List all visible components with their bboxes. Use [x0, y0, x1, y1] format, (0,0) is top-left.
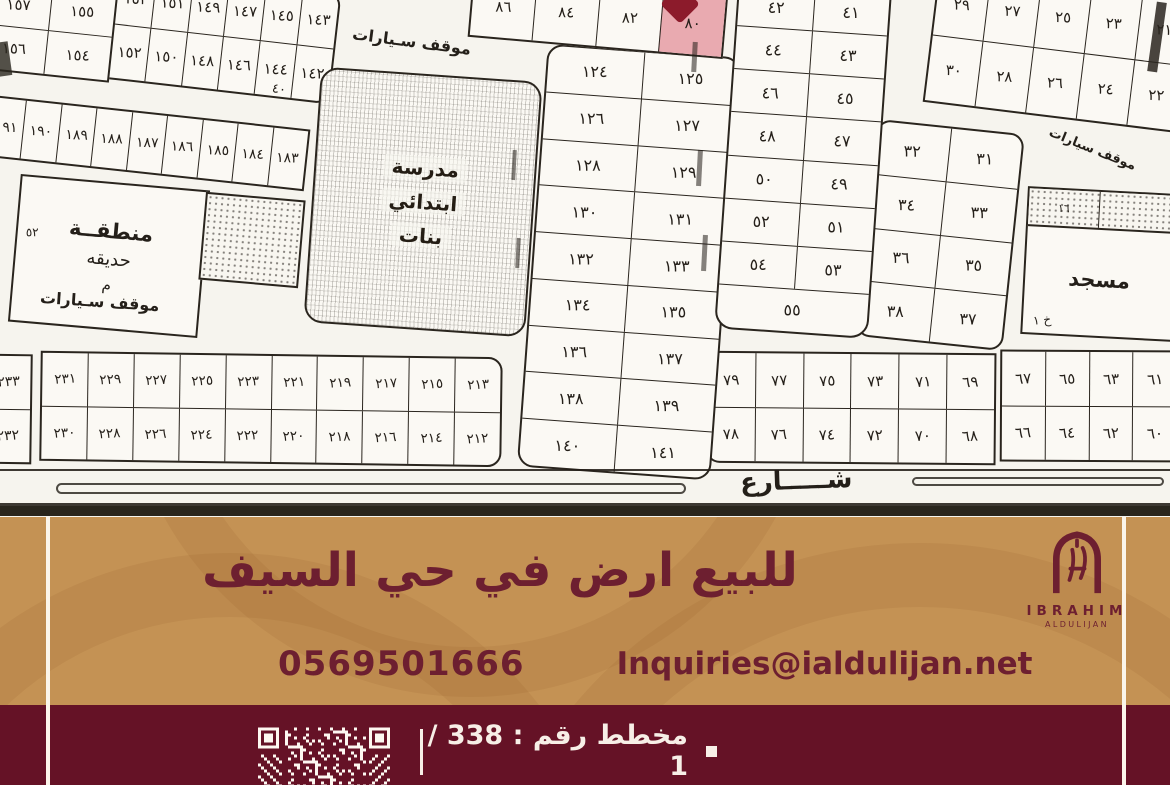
plot-number: ٧٠ — [914, 426, 931, 445]
plot-number: ٨٤ — [558, 3, 574, 21]
plot-number: ٢٢٤ — [190, 426, 213, 443]
plot-number: ٤٣ — [840, 46, 857, 65]
plot-cell: ١٣٥ — [623, 286, 722, 339]
ad-banner: للبيع ارض في حي السيف 0569501666 Inquiri… — [0, 517, 1170, 785]
plot-number: ١٣٢ — [568, 249, 594, 268]
plot-number: ٢٣٠ — [53, 424, 76, 441]
plot-number: ٧٧ — [771, 371, 788, 390]
plot-cell: ١٥٢ — [109, 24, 151, 81]
plot-number: ١٩١ — [0, 119, 18, 136]
plot-cell: ١٣٣ — [627, 239, 726, 292]
plot-number: ٣١ — [976, 149, 994, 169]
plot-number: ٢٤ — [1097, 80, 1114, 99]
road-median — [56, 483, 686, 494]
plot-cell: ٧٧ — [755, 353, 803, 407]
side-line-left — [46, 517, 50, 785]
plot-cell: ١٤٠ — [519, 419, 617, 472]
plot-number: ٣٨ — [887, 302, 905, 322]
plot-number: ٢٢٩ — [99, 371, 122, 388]
parking-label-top: موقف سـيارات — [351, 24, 472, 58]
plot-cell: ٢٦ — [1025, 47, 1084, 118]
plot-number: ٥٥ — [784, 301, 801, 320]
plot-number: ١٤٣ — [306, 10, 331, 29]
plot-number: ٢٣٣ — [0, 374, 20, 391]
plot-number: ١٤١ — [650, 443, 676, 462]
plot-cell: ٦٤ — [1044, 406, 1088, 460]
plot-number: ٢٥ — [1055, 8, 1072, 27]
plot-cell: ٢١٩ — [316, 357, 363, 410]
plot-number: ١٢٩ — [671, 163, 697, 182]
phone-number: 0569501666 — [278, 644, 525, 684]
plot-number: ١٣٠ — [572, 202, 598, 221]
plot-cell: ١٨٣ — [267, 128, 308, 189]
plot-block-leftM: ٢٣٣٢٣٢ — [0, 354, 33, 465]
plot-cell: ٤٦ — [731, 69, 808, 116]
plot-number: ٢٣٢ — [0, 427, 19, 444]
plot-number: ١٥٤ — [65, 46, 90, 65]
plot-cell: ٦٥ — [1045, 352, 1089, 406]
plot-number: ٧٩ — [723, 370, 740, 389]
plot-number: ١٤٨ — [190, 51, 215, 70]
plot-cell: ٣٤ — [868, 175, 945, 235]
plot-cell: ٥٣ — [794, 247, 872, 294]
plot-number: ١٢٨ — [575, 156, 601, 175]
plot-number: ١٣٨ — [558, 389, 584, 408]
plot-cell: ٦٠ — [1132, 407, 1170, 461]
garden-label-2: حديقه — [86, 247, 132, 272]
plot-cell: ١٣٤ — [529, 279, 627, 332]
plot-block-blockA: ١٥٧١٥٥١٥٦١٥٤ — [0, 0, 118, 83]
plot-number: ٦٢ — [1102, 424, 1119, 443]
parking-label-right: موقف سيارات — [1047, 125, 1139, 174]
plot-number: ١٥٣ — [123, 0, 148, 8]
plot-number: ١٥١ — [160, 0, 185, 12]
plot-number: ٧٢ — [866, 426, 883, 445]
plot-number: ٦٣ — [1102, 369, 1119, 388]
school-label-1: مدرسة — [383, 153, 468, 183]
school-block: مدرسة ابتدائي بنات — [303, 67, 542, 338]
plot-number: ١٥٠ — [154, 47, 179, 66]
plot-number: ٢٢٠ — [282, 427, 305, 444]
plot-cell: ٣٣ — [940, 182, 1018, 242]
plot-number: ٢٣١ — [54, 371, 77, 388]
plot-cell: ٣١ — [945, 129, 1023, 189]
plot-number: ١٤٤ — [263, 60, 288, 79]
mosque-block: ١٦ مسجد خ ١ — [1020, 186, 1170, 342]
plot-number: ١٣٥ — [660, 303, 686, 322]
plot-number: ٣٦ — [892, 248, 910, 268]
plot-cell: ٧٥ — [803, 354, 851, 408]
mosque-label: مسجد — [1068, 266, 1131, 293]
road-median-2 — [912, 477, 1164, 486]
plot-number: ٢١٦ — [374, 429, 397, 446]
plot-cell: ٢٢٩ — [87, 353, 134, 406]
plot-number: ٨٢ — [621, 9, 637, 27]
plot-block-rowsI: ٢٩٢٧٢٥٢٣٢١٣٠٢٨٢٦٢٤٢٢ — [923, 0, 1170, 133]
plot-number: ٢٦ — [1046, 74, 1063, 93]
plot-cell: ٢٢٤ — [178, 408, 225, 461]
plot-cell: ١٢٤ — [546, 46, 644, 99]
plot-number: ٤٨ — [758, 126, 775, 145]
plot-cell: ٢٤ — [1076, 54, 1135, 125]
plot-cell: ٦١ — [1132, 352, 1170, 406]
street-width-mark: ٤٠ — [271, 81, 286, 97]
plot-cell: ٢١٦ — [362, 411, 409, 464]
plot-cell: ٢٣١ — [42, 353, 88, 406]
plot-number: ٢١٧ — [375, 375, 398, 392]
plot-number: ١٨٥ — [206, 142, 229, 159]
bar-divider — [420, 729, 423, 775]
plot-cell: ٥٠ — [725, 155, 802, 202]
side-line-right — [1122, 517, 1126, 785]
plot-number: ٦١ — [1146, 370, 1163, 389]
plot-cell: ٢٣٠ — [41, 406, 87, 459]
plot-cell: ١٣١ — [630, 192, 729, 245]
plot-cell: ٣٠ — [925, 35, 983, 106]
plot-number: ٢٢٦ — [145, 426, 168, 443]
plot-cell: ٢٨ — [975, 41, 1034, 112]
plot-cell: ٢٣٣ — [0, 356, 31, 409]
school-label-2: ابتدائي — [380, 187, 466, 217]
qr-code — [258, 727, 390, 785]
plot-number: ١٤٩ — [196, 0, 221, 16]
plot-number: ١٤٠ — [555, 436, 581, 455]
plot-number: ٣٠ — [945, 61, 962, 80]
plot-number: ٢١٩ — [329, 375, 352, 392]
plot-cell: ٦٦ — [1002, 406, 1045, 460]
plot-number: ٧٣ — [867, 371, 884, 390]
plot-number: ٢٧ — [1004, 1, 1021, 20]
plot-cell: ١٣٨ — [522, 372, 620, 425]
plot-number: ٢٢٢ — [236, 427, 259, 444]
garden-note: ٥٢ — [26, 225, 39, 239]
plot-number: ٦٧ — [1015, 369, 1032, 388]
plot-number: ١٨٧ — [135, 135, 158, 152]
plot-number: ١٢٦ — [579, 109, 605, 128]
plot-number: ١٥٧ — [6, 0, 31, 14]
plot-cell: ٢١٤ — [407, 411, 454, 464]
plot-cell: ١٢٥ — [641, 53, 740, 106]
plot-cell: ٥٢ — [722, 198, 799, 245]
plot-cell: ٧٦ — [754, 408, 802, 462]
bullet-square — [706, 746, 717, 757]
plot-cell: ٢٣ — [1084, 0, 1143, 59]
map-area: ٦٧٦٥٦٣٦١٦٦٦٤٦٢٦٠٧٩٧٧٧٥٧٣٧١٦٩٧٨٧٦٧٤٧٢٧٠٦٨… — [0, 0, 1170, 517]
plot-number: ١٨٣ — [276, 150, 299, 167]
plot-number: ٦٨ — [962, 427, 979, 446]
plot-cell: ٤٩ — [800, 160, 878, 207]
plot-block-stripO: ٧٩٧٧٧٥٧٣٧١٦٩٧٨٧٦٧٤٧٢٧٠٦٨ — [706, 351, 997, 466]
plot-number: ٢٢٨ — [99, 425, 122, 442]
plot-number: ٧٤ — [818, 426, 835, 445]
plot-cell: ٢٢٢ — [224, 409, 271, 462]
plot-cell: ١٣٢ — [533, 232, 631, 285]
plot-cell: ٢٢١ — [271, 356, 318, 409]
plot-cell: ٧٣ — [850, 354, 898, 408]
email-address: Inquiries@ialdulijan.net — [617, 646, 1033, 682]
plot-number: ٦٠ — [1146, 424, 1163, 443]
school-label-3: بنات — [390, 222, 451, 250]
garden-area: منطقــة حديقه م ٥٢ — [8, 174, 210, 338]
arch-logo-icon — [1048, 531, 1106, 595]
plot-number: ٤٢ — [767, 0, 784, 16]
plot-number: ٣٤ — [898, 195, 916, 215]
plot-number: ٢٢ — [1148, 86, 1165, 105]
plot-number: ٢٢٧ — [145, 372, 168, 389]
plot-cell: ٦٧ — [1002, 352, 1045, 406]
plan-number: مخطط رقم : 338 / 1 — [425, 720, 688, 782]
plot-cell: ٨٦ — [470, 0, 537, 40]
plot-cell: ١٢٩ — [634, 146, 733, 199]
plot-number: ١٥٥ — [70, 2, 95, 21]
garden-label-3: م — [101, 275, 112, 294]
plot-cell: ٢١٨ — [316, 410, 363, 463]
plot-number: ٢٩ — [953, 0, 970, 14]
plot-cell: ١٥٠ — [144, 28, 187, 85]
plot-number: ٢٢١ — [283, 374, 306, 391]
stippled-block — [198, 192, 305, 288]
plot-cell: ٦٣ — [1089, 352, 1133, 406]
plot-number: ٣٥ — [964, 256, 982, 276]
plot-number: ١٣٦ — [562, 342, 588, 361]
scan-edge-bottom — [0, 506, 1170, 516]
plot-cell: ٦٨ — [946, 409, 994, 463]
plot-number: ٤٤ — [764, 40, 781, 59]
plot-number: ٥٠ — [755, 169, 772, 188]
plot-cell: ٢٢٦ — [132, 408, 179, 461]
plot-cell: ٦٩ — [946, 355, 994, 409]
plot-cell: ٢١٢ — [453, 412, 500, 465]
plot-cell: ٧٠ — [898, 409, 946, 463]
plot-cell: ٢٢٣ — [225, 355, 272, 408]
plot-number: ١٨٨ — [100, 131, 123, 148]
plot-cell: ٣٢ — [874, 121, 951, 181]
plot-block-blockH: ٤٢٤١٤٤٤٣٤٦٤٥٤٨٤٧٥٠٤٩٥٢٥١٥٤٥٣٥٥ — [714, 0, 892, 339]
plot-number: ١٣٤ — [565, 296, 591, 315]
plot-number: ٦٦ — [1015, 423, 1032, 442]
plot-number: ٣٣ — [970, 202, 988, 222]
plot-cell: ٤٣ — [809, 31, 887, 78]
bottom-bar: مخطط رقم : 338 / 1 — [0, 705, 1170, 785]
plot-number: ٤٩ — [831, 175, 848, 194]
plot-number: ٤١ — [843, 3, 860, 22]
plot-number: ٧٥ — [819, 371, 836, 390]
plot-cell: ٢١٥ — [408, 358, 455, 411]
plot-cell: ١٣٧ — [620, 332, 719, 385]
plan-number-row: مخطط رقم : 338 / 1 — [425, 731, 717, 771]
plot-cell: ١٣٩ — [617, 379, 716, 432]
plot-cell: ٧١ — [898, 354, 946, 408]
plot-cell: ٢١٧ — [362, 357, 409, 410]
plot-number: ٧١ — [914, 372, 931, 391]
ad-title: للبيع ارض في حي السيف — [80, 543, 920, 598]
plot-number: ٦٥ — [1059, 369, 1076, 388]
mosque-strip-number: ١٦ — [1058, 201, 1070, 215]
mosque-note: خ ١ — [1032, 312, 1051, 328]
plot-cell: ٣٧ — [928, 289, 1006, 349]
plot-cell: ٨٤ — [532, 0, 600, 46]
plot-number: ٢١٥ — [421, 376, 444, 393]
plot-number: ٢١٨ — [328, 428, 351, 445]
plot-number: ٥٣ — [825, 261, 842, 280]
garden-label: منطقــة — [68, 215, 154, 246]
plot-number: ٧٦ — [770, 425, 787, 444]
plot-cell: ١٣٦ — [526, 326, 624, 379]
plot-number: ١٨٩ — [65, 127, 88, 144]
plot-number: ٢٨ — [996, 67, 1013, 86]
plot-number: ١٤٥ — [269, 6, 294, 25]
plot-number: ٣٢ — [903, 141, 921, 161]
plot-number: ٢٢٣ — [237, 373, 260, 390]
plot-cell: ٢٥ — [1033, 0, 1092, 53]
plot-cell: ٨٢ — [595, 0, 663, 51]
road-edge-line — [0, 469, 1170, 471]
plot-cell: ٥١ — [797, 203, 875, 250]
plot-cell: ٢٢٠ — [270, 409, 317, 462]
flyer: { "map": { "blocks": { "blockA": {"rows"… — [0, 0, 1170, 785]
plot-number: ٢١٣ — [467, 377, 490, 394]
plot-number: ٣٧ — [959, 309, 977, 329]
plot-number: ١٣٣ — [664, 256, 690, 275]
plot-number: ٤٥ — [837, 89, 854, 108]
plot-number: ٥٤ — [749, 255, 766, 274]
plot-number: ١٤٦ — [227, 56, 252, 75]
plot-number: ١٢٧ — [674, 116, 700, 135]
plot-number: ٥٢ — [752, 212, 769, 231]
plot-cell: ١٥٤ — [43, 30, 112, 80]
plot-cell: ٢٧ — [983, 0, 1042, 46]
plot-number: ١٢٥ — [677, 69, 703, 88]
plot-number: ٢١٤ — [420, 429, 443, 446]
plot-number: ٢٢٥ — [191, 373, 214, 390]
plot-cell: ٢٣٢ — [0, 409, 30, 462]
plot-cell: ١٤٣ — [297, 0, 340, 48]
plot-block-stripP: ٦٧٦٥٦٣٦١٦٦٦٤٦٢٦٠ — [1000, 350, 1170, 463]
plot-number: ١٨٦ — [171, 138, 194, 155]
plot-number: ١٣١ — [667, 209, 693, 228]
plot-cell: ١٢٨ — [539, 139, 637, 192]
plot-number: ١٤٧ — [233, 1, 258, 20]
plot-cell: ٤٤ — [734, 26, 811, 73]
plot-number: ١٣٧ — [657, 349, 683, 368]
plot-cell: ٧٢ — [850, 408, 898, 462]
plot-cell: ٣٥ — [934, 235, 1012, 295]
plot-block-stripK: ٢٣١٢٢٩٢٢٧٢٢٥٢٢٣٢٢١٢١٩٢١٧٢١٥٢١٣٢٣٠٢٢٨٢٢٦٢… — [39, 351, 502, 467]
plot-cell: ١٣٠ — [536, 186, 634, 239]
plot-cell: ٦٢ — [1088, 406, 1132, 460]
plot-number: ٨٦ — [495, 0, 511, 16]
plot-cell: ٢٢٥ — [179, 355, 226, 408]
plot-cell: ٤٨ — [728, 112, 805, 159]
plot-number: ١٨٤ — [241, 146, 264, 163]
plot-number: ٦٤ — [1058, 424, 1075, 443]
plot-cell: ٢٢٧ — [133, 354, 180, 407]
plot-cell: ٢٢٨ — [86, 407, 133, 460]
contact-row: 0569501666 Inquiries@ialdulijan.net — [252, 637, 932, 691]
plot-number: ٤٦ — [761, 83, 778, 102]
plot-block-centerN: ١٢٤١٢٥١٢٦١٢٧١٢٨١٢٩١٣٠١٣١١٣٢١٣٣١٣٤١٣٥١٣٦١… — [517, 43, 742, 480]
plot-cell: ١٤٦ — [217, 36, 260, 93]
plot-cell: ٤٥ — [806, 74, 884, 121]
plot-number: ٢٣ — [1105, 14, 1122, 33]
plot-number: ١٩٠ — [30, 123, 53, 140]
plot-number: ٤٧ — [834, 132, 851, 151]
plot-cell: ٧٤ — [802, 408, 850, 462]
plot-number: ٧٨ — [723, 425, 740, 444]
plot-cell: ١٢٧ — [637, 99, 736, 152]
plot-cell: ١٢٦ — [543, 92, 641, 145]
plot-number: ١٥٢ — [117, 43, 142, 62]
plot-cell: ١٤٨ — [181, 32, 224, 89]
plot-cell: ٢١٣ — [454, 359, 501, 412]
plot-cell: ٤٧ — [803, 117, 881, 164]
plot-number: ١٣٩ — [653, 396, 679, 415]
plot-number: ٢١٢ — [466, 430, 489, 447]
plot-block-blockB: ١٥٣١٥١١٤٩١٤٧١٤٥١٤٣١٥٢١٥٠١٤٨١٤٦١٤٤١٤٢ — [106, 0, 341, 104]
plot-number: ١٢٤ — [582, 62, 608, 81]
plot-cell: ٥٤ — [719, 241, 796, 288]
plot-number: ٥١ — [828, 218, 845, 237]
plot-cell: ٥٥ — [716, 284, 869, 336]
plot-number: ٦٩ — [962, 372, 979, 391]
